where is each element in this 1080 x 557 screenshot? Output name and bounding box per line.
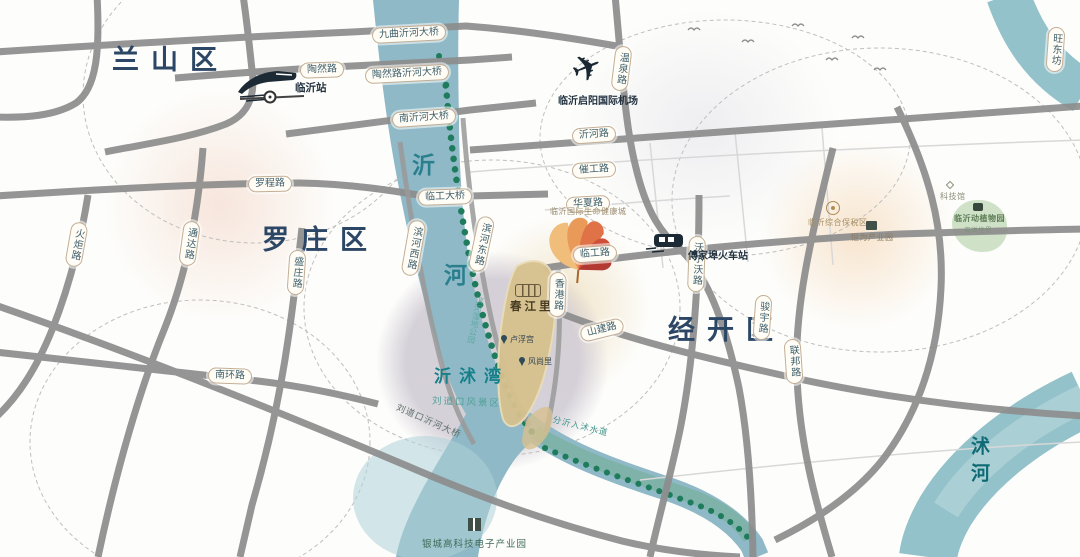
project-logo [515, 284, 541, 297]
industry-park-icon [468, 518, 481, 531]
poi-louvre: 卢浮宫 [510, 334, 534, 345]
linyi-station-label: 临沂站 [295, 80, 327, 95]
health-city-label: 临沂国际生命健康城 [550, 206, 627, 217]
road-pill-lianbang: 联邦路 [783, 338, 803, 384]
poi-fengshang: 风尚里 [528, 356, 552, 367]
location-map: 兰山区 罗庄区 经开区 沂 河 沂沭湾 沭河 分沂入沭水道 陶然路 九曲沂河大桥… [0, 0, 1080, 557]
road-pill-nanhuan: 南环路 [208, 367, 253, 385]
zoo-sub-label: 海洋世界 [964, 224, 992, 234]
birds [688, 24, 886, 70]
bridge-pill-lingong: 临工大桥 [418, 188, 473, 206]
shu-river-label: 沭河 [966, 436, 993, 490]
district-lanshan: 兰山区 [112, 38, 229, 77]
project-name: 春江里 [510, 298, 554, 314]
yi-river-label-1: 沂 [412, 146, 435, 180]
road-tongda [98, 148, 203, 557]
hengwei-park-icon [866, 221, 877, 230]
hengwei-park-label: 恒为产业园 [851, 232, 894, 243]
zoo-label: 临沂动植物园 [954, 213, 1005, 224]
airport-label: 临沂启阳国际机场 [558, 92, 638, 107]
yi-river-label-2: 河 [444, 256, 467, 290]
fujiabu-station-label: 傅家埠火车站 [688, 247, 748, 262]
road-pill-yihe: 沂河路 [571, 125, 616, 144]
road-top [0, 26, 622, 52]
industry-park-label: 银城高科技电子产业园 [422, 536, 527, 550]
road-pill-junyu: 骏宇路 [752, 294, 772, 340]
road-pill-shengzhuang: 盛庄路 [286, 249, 306, 295]
road-pill-wangdong: 旺东坊 [1045, 26, 1065, 72]
fengshang-pin-icon [519, 357, 525, 363]
louvre-pin-icon [501, 335, 507, 341]
road-pill-taoran: 陶然路 [300, 61, 345, 79]
zoo-icon [973, 203, 983, 211]
river-top-right [1008, 0, 1080, 92]
road-nw-vertical [0, 0, 98, 117]
yishu-bay-label: 沂沭湾 [434, 362, 509, 387]
dashed-circle-east [672, 48, 1080, 352]
bonded-zone-label: 临沂综合保税区 [808, 217, 868, 228]
road-pill-cuigong: 催工路 [572, 161, 617, 179]
bonded-zone-icon [826, 201, 840, 215]
map-geometry [0, 0, 1080, 557]
district-luozhuang: 罗庄区 [262, 218, 379, 257]
road-pill-volvo: 沃尔沃路 [687, 236, 706, 293]
road-pill-lingong: 临工路 [572, 244, 617, 263]
sci-museum-label: 科技馆 [940, 191, 966, 202]
road-shanjian [548, 308, 1080, 416]
liudaokou-scenic-label: 刘道口风景区 [432, 393, 501, 409]
road-pill-luocheng: 罗程路 [248, 176, 292, 193]
